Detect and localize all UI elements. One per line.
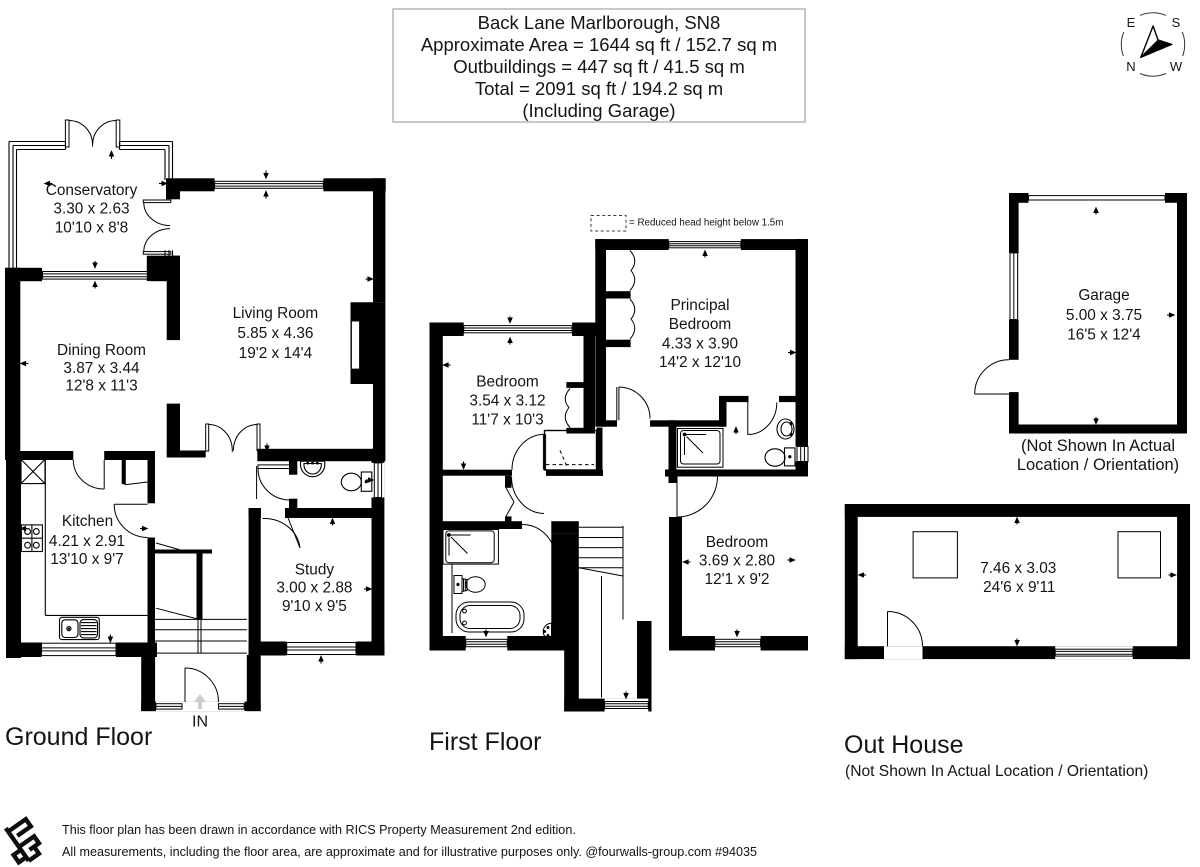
svg-text:N: N [1126,59,1135,74]
svg-text:5.00 x 3.75: 5.00 x 3.75 [1066,307,1142,324]
svg-text:E: E [1127,15,1136,30]
svg-text:Total = 2091 sq ft / 194.2 sq: Total = 2091 sq ft / 194.2 sq m [475,78,723,99]
svg-text:S: S [1172,15,1181,30]
svg-text:16'5 x 12'4: 16'5 x 12'4 [1067,327,1141,344]
svg-text:(Not Shown In Actual Location: (Not Shown In Actual Location / Orientat… [845,763,1148,780]
svg-text:W: W [1170,59,1183,74]
svg-text:19'2 x 14'4: 19'2 x 14'4 [239,345,313,362]
svg-text:Outbuildings = 447 sq ft / 41.: Outbuildings = 447 sq ft / 41.5 sq m [453,56,745,77]
svg-text:12'8 x 11'3: 12'8 x 11'3 [65,378,137,395]
svg-text:= Reduced head height below 1.: = Reduced head height below 1.5m [629,217,783,228]
svg-text:3.69 x 2.80: 3.69 x 2.80 [699,553,775,570]
svg-text:Dining Room: Dining Room [57,342,146,359]
svg-text:Bedroom: Bedroom [476,374,538,391]
svg-text:3.00 x 2.88: 3.00 x 2.88 [276,580,352,597]
svg-text:13'10 x 9'7: 13'10 x 9'7 [50,551,123,568]
svg-text:4.21 x 2.91: 4.21 x 2.91 [49,533,125,550]
svg-text:Garage: Garage [1078,287,1129,304]
svg-text:14'2 x 12'10: 14'2 x 12'10 [659,354,741,371]
svg-text:7.46 x 3.03: 7.46 x 3.03 [980,560,1056,577]
svg-text:Principal: Principal [670,297,729,314]
svg-text:Conservatory: Conservatory [46,182,138,199]
svg-text:This floor plan has been drawn: This floor plan has been drawn in accord… [62,823,576,837]
svg-text:Living Room: Living Room [233,305,319,322]
svg-text:Study: Study [295,562,335,579]
svg-text:Ground Floor: Ground Floor [5,723,152,751]
svg-text:All measurements, including th: All measurements, including the floor ar… [62,845,757,859]
svg-text:(Not Shown In Actual: (Not Shown In Actual [1021,437,1175,455]
svg-text:Bedroom: Bedroom [669,316,731,333]
svg-text:5.85 x 4.36: 5.85 x 4.36 [237,325,313,342]
svg-text:IN: IN [192,714,208,731]
svg-text:4.33 x 3.90: 4.33 x 3.90 [662,335,738,352]
svg-text:3.54 x 3.12: 3.54 x 3.12 [469,393,545,410]
svg-text:3.87 x 3.44: 3.87 x 3.44 [63,360,140,377]
svg-text:3.30 x 2.63: 3.30 x 2.63 [53,201,129,218]
svg-text:(Including Garage): (Including Garage) [522,100,675,121]
svg-text:11'7 x 10'3: 11'7 x 10'3 [471,412,543,429]
svg-text:9'10 x 9'5: 9'10 x 9'5 [282,598,347,615]
svg-text:Location / Orientation): Location / Orientation) [1017,456,1179,474]
svg-text:Out House: Out House [844,731,964,759]
svg-text:Back Lane Marlborough, SN8: Back Lane Marlborough, SN8 [478,12,721,33]
svg-text:First Floor: First Floor [429,728,542,756]
svg-text:Approximate Area = 1644 sq ft: Approximate Area = 1644 sq ft / 152.7 sq… [421,34,777,55]
svg-text:10'10 x 8'8: 10'10 x 8'8 [55,220,128,237]
svg-text:24'6 x 9'11: 24'6 x 9'11 [983,579,1055,596]
svg-text:12'1 x 9'2: 12'1 x 9'2 [705,571,770,588]
svg-text:Kitchen: Kitchen [62,513,113,530]
svg-text:Bedroom: Bedroom [706,534,768,551]
